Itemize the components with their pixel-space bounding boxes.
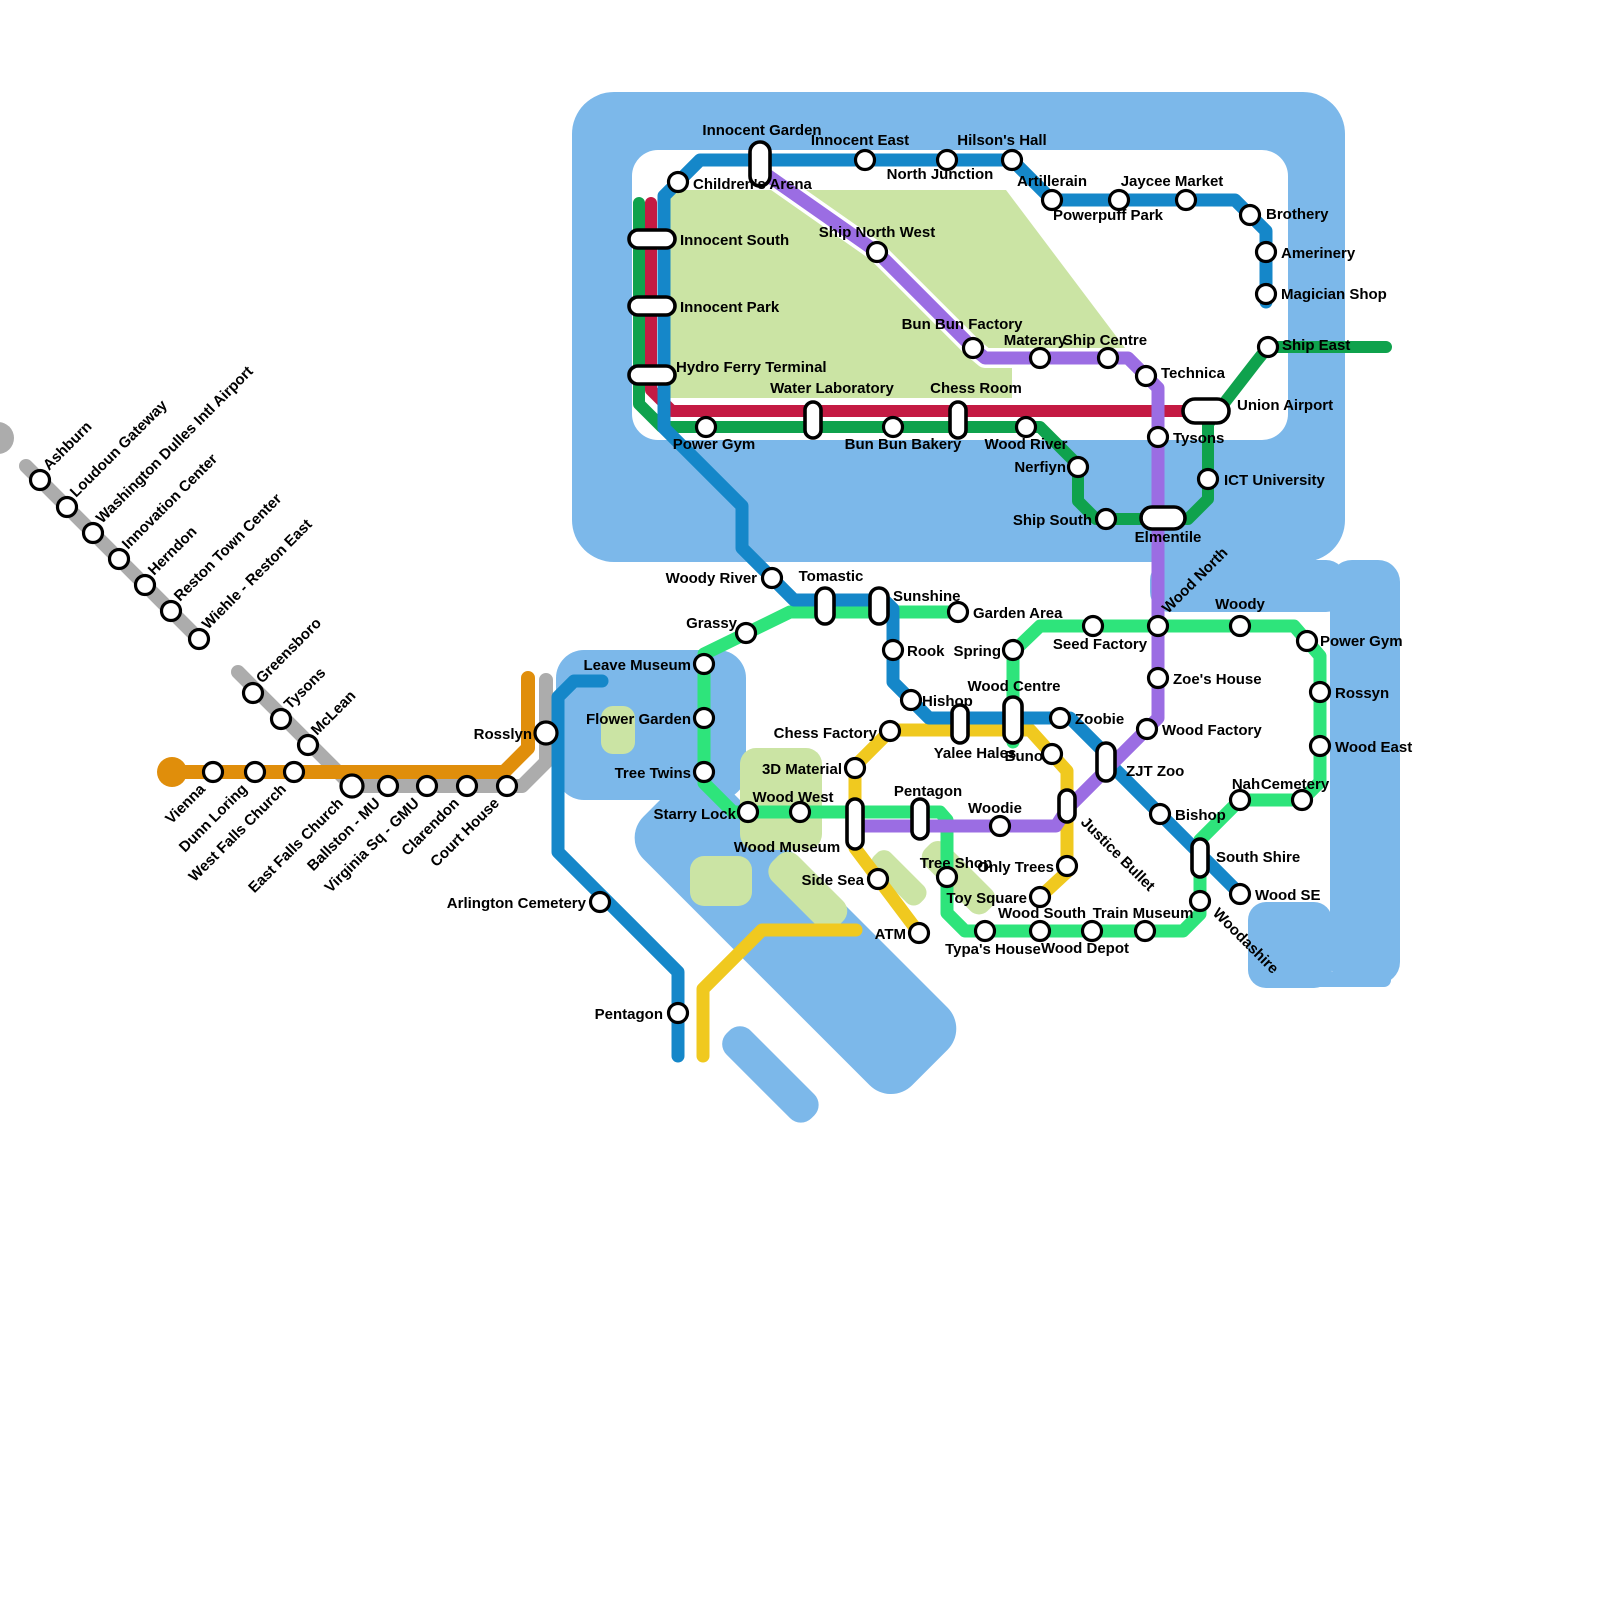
station-label-power-gym-south: Power Gym [1320, 633, 1403, 650]
station-label-hishop: Hishop [922, 693, 973, 710]
station-south-shire[interactable] [1192, 839, 1208, 877]
station-label-three-d-material: 3D Material [762, 761, 842, 778]
station-rook[interactable] [884, 641, 903, 660]
line-orange-line [178, 678, 528, 772]
station-label-wood-centre: Wood Centre [967, 678, 1060, 695]
station-label-typas-house: Typa's House [945, 941, 1041, 958]
station-amerinery[interactable] [1257, 243, 1276, 262]
station-label-brothery: Brothery [1266, 206, 1329, 223]
station-east-falls-church[interactable] [341, 775, 363, 797]
water-shape [1296, 972, 1391, 987]
water-shape [716, 1020, 825, 1129]
station-wood-south[interactable] [1031, 922, 1050, 941]
station-zoobie[interactable] [1051, 709, 1070, 728]
station-label-seed-factory: Seed Factory [1053, 636, 1148, 653]
station-label-tree-shop: Tree Shop [920, 855, 993, 872]
station-label-wood-river-north: Wood River [984, 436, 1067, 453]
station-innocent-east[interactable] [856, 151, 875, 170]
station-label-bun-bun-factory: Bun Bun Factory [902, 316, 1023, 333]
station-tysons-south[interactable] [272, 710, 291, 729]
station-dunn-loring[interactable] [246, 763, 265, 782]
station-woodie[interactable] [991, 817, 1010, 836]
station-label-bun-bun-bakery: Bun Bun Bakery [845, 436, 962, 453]
station-zjt-zoo[interactable] [1097, 743, 1115, 781]
station-yalee-hales[interactable] [952, 705, 968, 743]
station-wood-factory[interactable] [1138, 720, 1157, 739]
station-power-gym-south[interactable] [1298, 632, 1317, 651]
station-garden-area[interactable] [949, 603, 968, 622]
station-label-innocent-garden: Innocent Garden [702, 122, 821, 139]
station-label-wood-depot: Wood Depot [1041, 940, 1129, 957]
station-label-childrens-arena: Children's Arena [693, 176, 813, 193]
station-label-rosslyn: Rosslyn [474, 726, 532, 743]
station-technica[interactable] [1137, 367, 1156, 386]
station-label-grassy: Grassy [686, 615, 738, 632]
station-label-arlington-cemetery: Arlington Cemetery [447, 895, 587, 912]
station-label-wood-se: Wood SE [1255, 887, 1321, 904]
park-shape [690, 856, 752, 906]
station-label-pentagon-west: Pentagon [595, 1006, 663, 1023]
station-label-technica: Technica [1161, 365, 1226, 382]
station-wood-museum[interactable] [847, 799, 863, 849]
station-label-chess-room: Chess Room [930, 380, 1022, 397]
station-label-power-gym-north: Power Gym [673, 436, 756, 453]
station-label-elmentile: Elmentile [1135, 529, 1202, 546]
station-tomastic[interactable] [816, 588, 834, 624]
station-label-train-museum: Train Museum [1093, 905, 1194, 922]
station-label-water-laboratory: Water Laboratory [770, 380, 894, 397]
station-label-hilsons-hall: Hilson's Hall [957, 132, 1046, 149]
station-label-wood-west: Wood West [752, 789, 833, 806]
station-label-union-airport: Union Airport [1237, 397, 1333, 414]
station-rosslyn[interactable] [535, 722, 557, 744]
station-label-rook: Rook [907, 643, 945, 660]
station-label-woody: Woody [1215, 596, 1265, 613]
orange-terminus-blob [157, 757, 187, 787]
station-label-nerfiyn: Nerfiyn [1014, 459, 1066, 476]
station-toy-square[interactable] [1031, 888, 1050, 907]
station-label-powerpuff-park: Powerpuff Park [1053, 207, 1164, 224]
station-wood-north[interactable] [1149, 617, 1168, 636]
station-materary[interactable] [1031, 349, 1050, 368]
station-reston-town-center[interactable] [162, 602, 181, 621]
station-ict-university[interactable] [1199, 470, 1218, 489]
station-label-chess-factory: Chess Factory [774, 725, 878, 742]
station-woody-river[interactable] [763, 569, 782, 588]
station-label-bishop: Bishop [1175, 807, 1226, 824]
station-label-flower-garden: Flower Garden [586, 711, 691, 728]
station-wiehle-reston-east[interactable] [190, 630, 209, 649]
station-grassy[interactable] [737, 624, 756, 643]
station-label-artillerain: Artillerain [1017, 173, 1087, 190]
station-label-wood-factory: Wood Factory [1162, 722, 1262, 739]
station-label-nah: Nah [1232, 776, 1260, 793]
station-label-materary: Materary [1004, 332, 1067, 349]
station-wood-east[interactable] [1311, 737, 1330, 756]
station-ship-north-west[interactable] [868, 243, 887, 262]
station-label-wiehle-reston-east: Wiehle - Reston East [199, 516, 316, 633]
station-label-magician-shop: Magician Shop [1281, 286, 1387, 303]
station-rossyn[interactable] [1311, 683, 1330, 702]
metro-map-canvas: Innocent GardenChildren's ArenaInnocent … [0, 0, 1600, 1600]
station-label-starry-lock: Starry Lock [653, 806, 736, 823]
station-label-leave-museum: Leave Museum [583, 657, 691, 674]
station-court-house[interactable] [498, 777, 517, 796]
station-label-wood-south: Wood South [998, 905, 1086, 922]
station-hishop[interactable] [902, 691, 921, 710]
station-label-justice-bullet: Justice Bullet [1077, 814, 1158, 895]
station-mclean[interactable] [299, 736, 318, 755]
station-label-jaycee-market: Jaycee Market [1121, 173, 1224, 190]
station-greensboro[interactable] [244, 684, 263, 703]
station-label-cemetery: Cemetery [1261, 776, 1330, 793]
station-bishop[interactable] [1151, 805, 1170, 824]
station-innovation-center[interactable] [110, 550, 129, 569]
station-woody[interactable] [1231, 617, 1250, 636]
station-tysons-north[interactable] [1149, 428, 1168, 447]
station-wood-river-north[interactable] [1017, 418, 1036, 437]
station-label-zoobie: Zoobie [1075, 711, 1124, 728]
station-loudoun-gateway[interactable] [58, 498, 77, 517]
station-label-spring: Spring [954, 643, 1002, 660]
station-label-tree-twins: Tree Twins [615, 765, 691, 782]
station-label-ship-north-west: Ship North West [819, 224, 935, 241]
water-shape [1352, 946, 1398, 961]
station-wood-centre[interactable] [1004, 697, 1022, 743]
station-label-north-junction: North Junction [887, 166, 994, 183]
station-side-sea[interactable] [869, 870, 888, 889]
station-label-side-sea: Side Sea [801, 872, 864, 889]
station-chess-room[interactable] [950, 402, 966, 438]
station-three-d-material[interactable] [846, 759, 865, 778]
station-label-tysons-north: Tysons [1173, 430, 1224, 447]
station-water-laboratory[interactable] [805, 402, 821, 438]
station-label-zjt-zoo: ZJT Zoo [1126, 763, 1184, 780]
station-washington-dulles-intl-airport[interactable] [84, 524, 103, 543]
station-label-wood-east: Wood East [1335, 739, 1412, 756]
station-bun-bun-factory[interactable] [964, 339, 983, 358]
station-union-airport[interactable] [1183, 399, 1229, 423]
station-seed-factory[interactable] [1084, 617, 1103, 636]
station-leave-museum[interactable] [695, 655, 714, 674]
station-label-woodie: Woodie [968, 800, 1022, 817]
station-label-hydro-ferry-terminal: Hydro Ferry Terminal [676, 359, 827, 376]
station-cemetery[interactable] [1293, 791, 1312, 810]
station-wood-se[interactable] [1231, 885, 1250, 904]
station-tree-twins[interactable] [695, 763, 714, 782]
station-nerfiyn[interactable] [1069, 458, 1088, 477]
station-brothery[interactable] [1241, 206, 1260, 225]
station-ship-south[interactable] [1097, 510, 1116, 529]
station-label-ship-east: Ship East [1282, 337, 1350, 354]
station-label-tomastic: Tomastic [799, 568, 864, 585]
station-ashburn[interactable] [31, 471, 50, 490]
station-ship-centre[interactable] [1099, 349, 1118, 368]
station-label-yalee-hales: Yalee Hales [934, 745, 1017, 762]
station-magician-shop[interactable] [1257, 285, 1276, 304]
station-innocent-park[interactable] [629, 297, 675, 315]
station-clarendon[interactable] [458, 777, 477, 796]
station-typas-house[interactable] [976, 922, 995, 941]
station-justice-bullet[interactable] [1059, 790, 1075, 822]
station-label-pentagon-pill: Pentagon [894, 783, 962, 800]
water-shape [1330, 560, 1400, 984]
station-label-rossyn: Rossyn [1335, 685, 1389, 702]
station-label-mclean: McLean [308, 687, 360, 739]
station-chess-factory[interactable] [881, 722, 900, 741]
station-jaycee-market[interactable] [1177, 191, 1196, 210]
silver-terminus-blob [0, 422, 14, 454]
station-label-atm: ATM [875, 926, 906, 943]
station-nah[interactable] [1231, 791, 1250, 810]
station-label-ship-south: Ship South [1013, 512, 1092, 529]
station-buno[interactable] [1043, 745, 1062, 764]
station-power-gym-north[interactable] [697, 418, 716, 437]
station-wood-depot[interactable] [1083, 922, 1102, 941]
station-atm[interactable] [910, 924, 929, 943]
station-virginia-sq-gmu[interactable] [418, 777, 437, 796]
station-only-trees[interactable] [1058, 857, 1077, 876]
metro-map-page: Innocent GardenChildren's ArenaInnocent … [0, 0, 1600, 1600]
station-label-innocent-south: Innocent South [680, 232, 789, 249]
station-label-loudoun-gateway: Loudoun Gateway [67, 396, 171, 500]
station-train-museum[interactable] [1136, 922, 1155, 941]
station-bun-bun-bakery[interactable] [884, 418, 903, 437]
station-hilsons-hall[interactable] [1003, 151, 1022, 170]
station-ship-east[interactable] [1259, 338, 1278, 357]
station-hydro-ferry-terminal[interactable] [629, 366, 675, 384]
station-label-amerinery: Amerinery [1281, 245, 1356, 262]
station-flower-garden[interactable] [695, 709, 714, 728]
station-label-innocent-park: Innocent Park [680, 299, 780, 316]
station-elmentile[interactable] [1141, 507, 1185, 529]
station-label-garden-area: Garden Area [973, 605, 1063, 622]
station-spring[interactable] [1004, 641, 1023, 660]
station-ballston-mu[interactable] [379, 777, 398, 796]
station-label-ict-university: ICT University [1224, 472, 1326, 489]
station-label-ship-centre: Ship Centre [1063, 332, 1147, 349]
station-label-wood-museum: Wood Museum [734, 839, 840, 856]
station-vienna[interactable] [204, 763, 223, 782]
station-label-zoes-house: Zoe's House [1173, 671, 1262, 688]
station-herndon[interactable] [136, 576, 155, 595]
station-childrens-arena[interactable] [669, 173, 688, 192]
station-label-south-shire: South Shire [1216, 849, 1300, 866]
station-label-ashburn: Ashburn [40, 418, 96, 474]
station-pentagon-pill[interactable] [912, 799, 928, 839]
station-label-innovation-center: Innovation Center [119, 451, 221, 553]
station-pentagon-west[interactable] [669, 1004, 688, 1023]
station-label-woody-river: Woody River [666, 570, 758, 587]
station-label-innocent-east: Innocent East [811, 132, 909, 149]
station-innocent-south[interactable] [629, 230, 675, 248]
station-arlington-cemetery[interactable] [591, 893, 610, 912]
station-zoes-house[interactable] [1149, 669, 1168, 688]
station-west-falls-church[interactable] [285, 763, 304, 782]
station-label-sunshine: Sunshine [893, 588, 961, 605]
station-label-tysons-south: Tysons [281, 664, 329, 712]
station-sunshine[interactable] [870, 588, 888, 624]
